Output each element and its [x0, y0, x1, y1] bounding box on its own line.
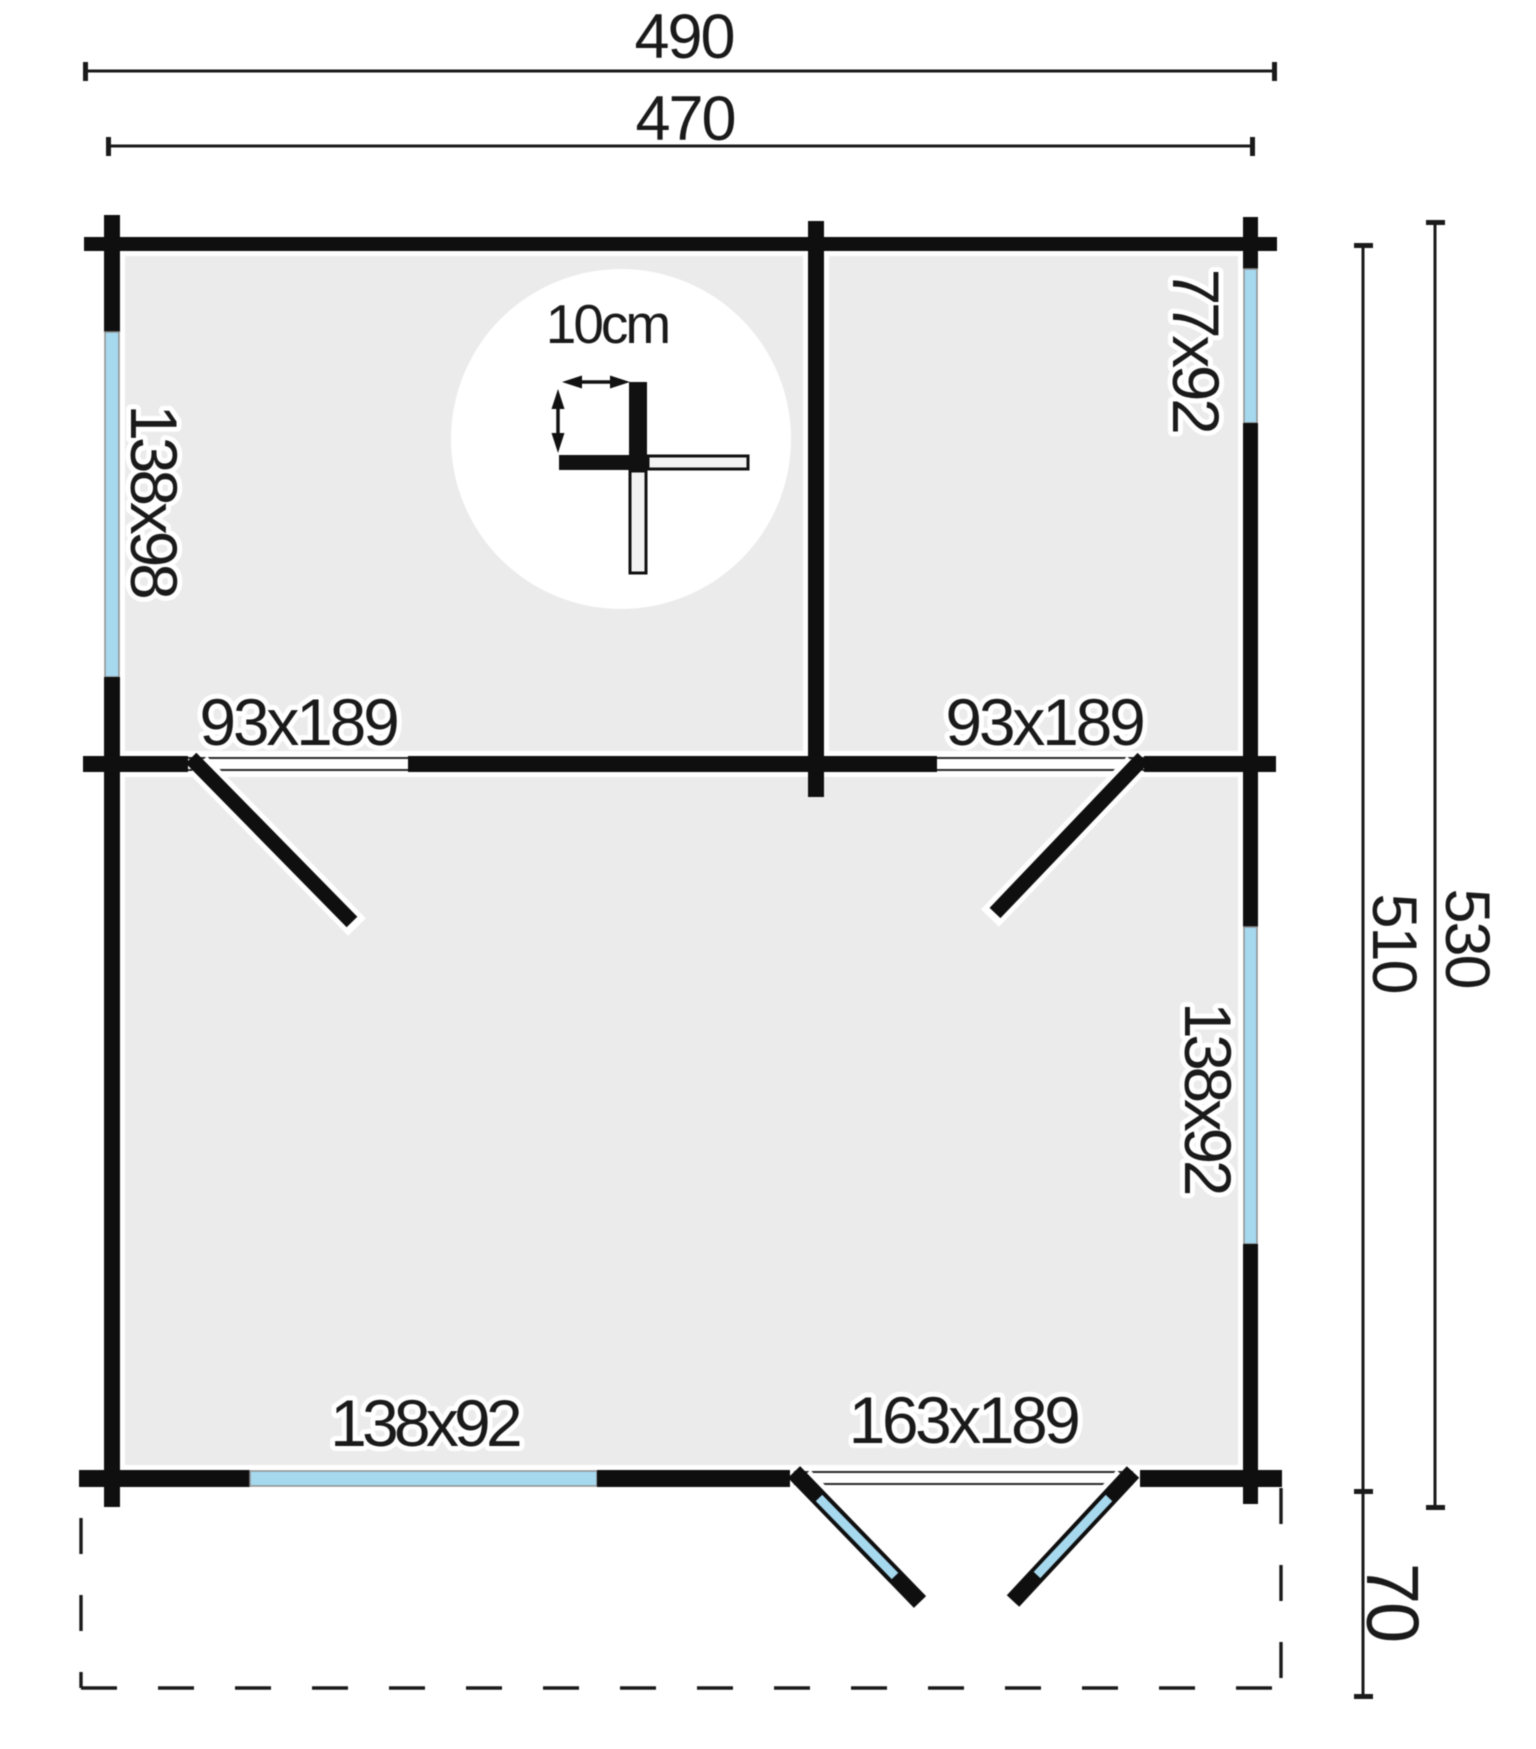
svg-text:138x92: 138x92 [1171, 1002, 1245, 1194]
svg-text:490: 490 [634, 2, 733, 72]
svg-text:530: 530 [1432, 888, 1502, 987]
svg-text:163x189: 163x189 [849, 1383, 1079, 1457]
svg-text:70: 70 [1351, 1563, 1434, 1641]
svg-text:138x92: 138x92 [330, 1386, 520, 1460]
svg-text:138x98: 138x98 [117, 404, 191, 597]
svg-text:470: 470 [635, 84, 734, 154]
svg-text:93x189: 93x189 [945, 685, 1143, 759]
svg-text:77x92: 77x92 [1159, 269, 1233, 433]
svg-text:93x189: 93x189 [199, 685, 397, 759]
svg-text:510: 510 [1359, 893, 1429, 992]
svg-text:10cm: 10cm [546, 293, 669, 355]
